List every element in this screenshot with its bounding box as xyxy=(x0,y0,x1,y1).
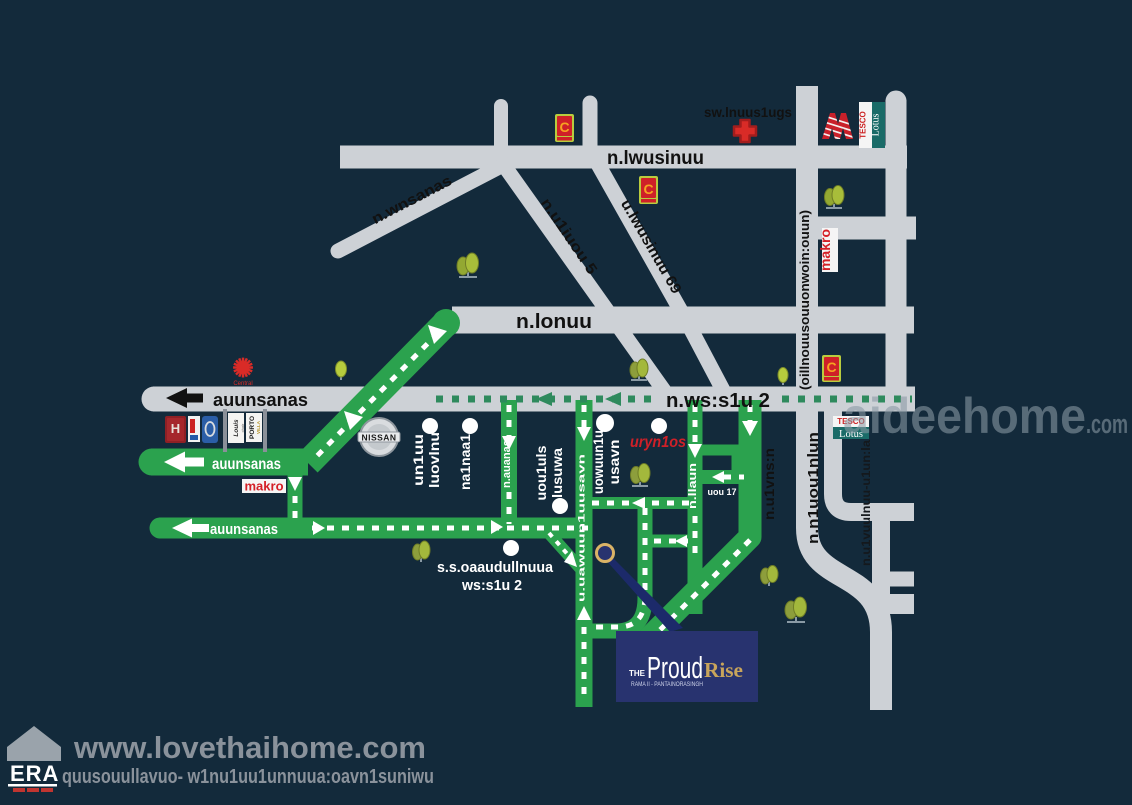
svg-text:n.ws:s1u 2: n.ws:s1u 2 xyxy=(666,390,770,412)
svg-text:sw.lnuus1ugs: sw.lnuus1ugs xyxy=(704,104,792,120)
svg-text:Lotus: Lotus xyxy=(871,114,882,137)
svg-text:n.u1vns:n: n.u1vns:n xyxy=(761,448,777,520)
svg-text:n.lonuu: n.lonuu xyxy=(516,311,592,333)
svg-text:(oillnouusouuonwoin:ouun): (oillnouusouuonwoin:ouun) xyxy=(798,210,812,390)
svg-text:u.uawuun1uusavn: u.uawuun1uusavn xyxy=(577,454,588,602)
svg-text:C: C xyxy=(559,119,569,135)
svg-text:s.s.oaaudullnuua: s.s.oaaudullnuua xyxy=(437,559,554,576)
svg-text:auunsanas: auunsanas xyxy=(212,456,281,473)
svg-text:RAMA II - PANTAINORASINGH: RAMA II - PANTAINORASINGH xyxy=(631,681,703,688)
svg-text:THE: THE xyxy=(629,668,645,678)
svg-text:Central: Central xyxy=(233,381,252,387)
svg-text:auunsanas: auunsanas xyxy=(213,390,308,410)
svg-text:chair: chair xyxy=(240,423,245,432)
svg-text:n.n1uou1nlun: n.n1uou1nlun xyxy=(805,432,822,544)
svg-text:n.u1vuulnuu-u1un:la: n.u1vuulnuu-u1un:la xyxy=(859,440,873,566)
svg-text:n.llaun: n.llaun xyxy=(687,463,699,509)
svg-text:luovlnu: luovlnu xyxy=(427,432,442,488)
svg-text:n.auanas: n.auanas xyxy=(501,440,513,488)
svg-text:C: C xyxy=(643,181,653,197)
svg-text:uou1uls: uou1uls xyxy=(534,446,549,501)
svg-text:H: H xyxy=(171,421,180,436)
svg-text:ws:s1u 2: ws:s1u 2 xyxy=(461,577,522,594)
svg-text:lusuwa: lusuwa xyxy=(550,447,565,498)
svg-text:VILLA: VILLA xyxy=(256,420,261,434)
svg-text:Louis: Louis xyxy=(233,419,240,437)
svg-text:C: C xyxy=(826,359,836,375)
svg-text:.com: .com xyxy=(1086,409,1128,439)
svg-text:uowuun1u: uowuun1u xyxy=(591,430,606,494)
svg-text:NISSAN: NISSAN xyxy=(361,433,396,443)
svg-text:PORTO: PORTO xyxy=(249,416,256,439)
svg-text:TESCO: TESCO xyxy=(859,111,868,139)
svg-text:Proud: Proud xyxy=(647,650,703,685)
svg-text:na1naa1: na1naa1 xyxy=(458,434,473,490)
svg-text:usavn: usavn xyxy=(607,440,622,485)
svg-text:Rise: Rise xyxy=(704,658,743,682)
svg-text:www.lovethaihome.com: www.lovethaihome.com xyxy=(73,730,426,765)
svg-text:uryn1os: uryn1os xyxy=(630,434,686,451)
svg-text:makro: makro xyxy=(817,229,833,271)
svg-text:makro: makro xyxy=(244,479,283,494)
svg-text:quusouullavuo- w1nu1uu1unnuua:: quusouullavuo- w1nu1uu1unnuua:oavn1suniw… xyxy=(62,766,434,788)
svg-text:uou 17: uou 17 xyxy=(707,487,736,497)
svg-text:aideehome: aideehome xyxy=(843,388,1086,444)
svg-text:✺: ✺ xyxy=(232,353,254,383)
svg-text:un1uu: un1uu xyxy=(411,434,426,486)
svg-text:ERA: ERA xyxy=(10,761,59,786)
svg-text:n.lwusinuu: n.lwusinuu xyxy=(607,148,704,169)
svg-text:auunsanas: auunsanas xyxy=(210,521,278,538)
